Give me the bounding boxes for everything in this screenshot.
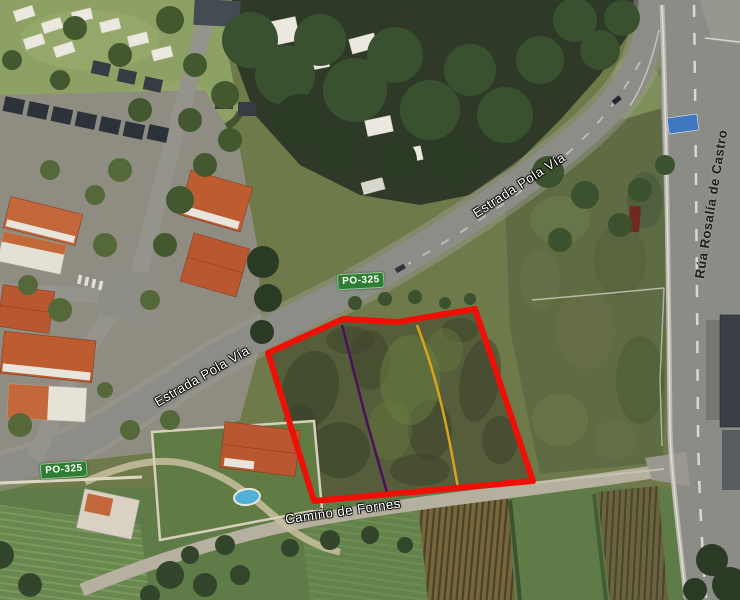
route-badge-po325-left: PO-325 [40, 460, 88, 479]
map-canvas[interactable]: Estrada Pola Vía Estrada Pola Vía Rúa Ro… [0, 0, 740, 600]
route-badge-po325-center: PO-325 [337, 272, 385, 290]
